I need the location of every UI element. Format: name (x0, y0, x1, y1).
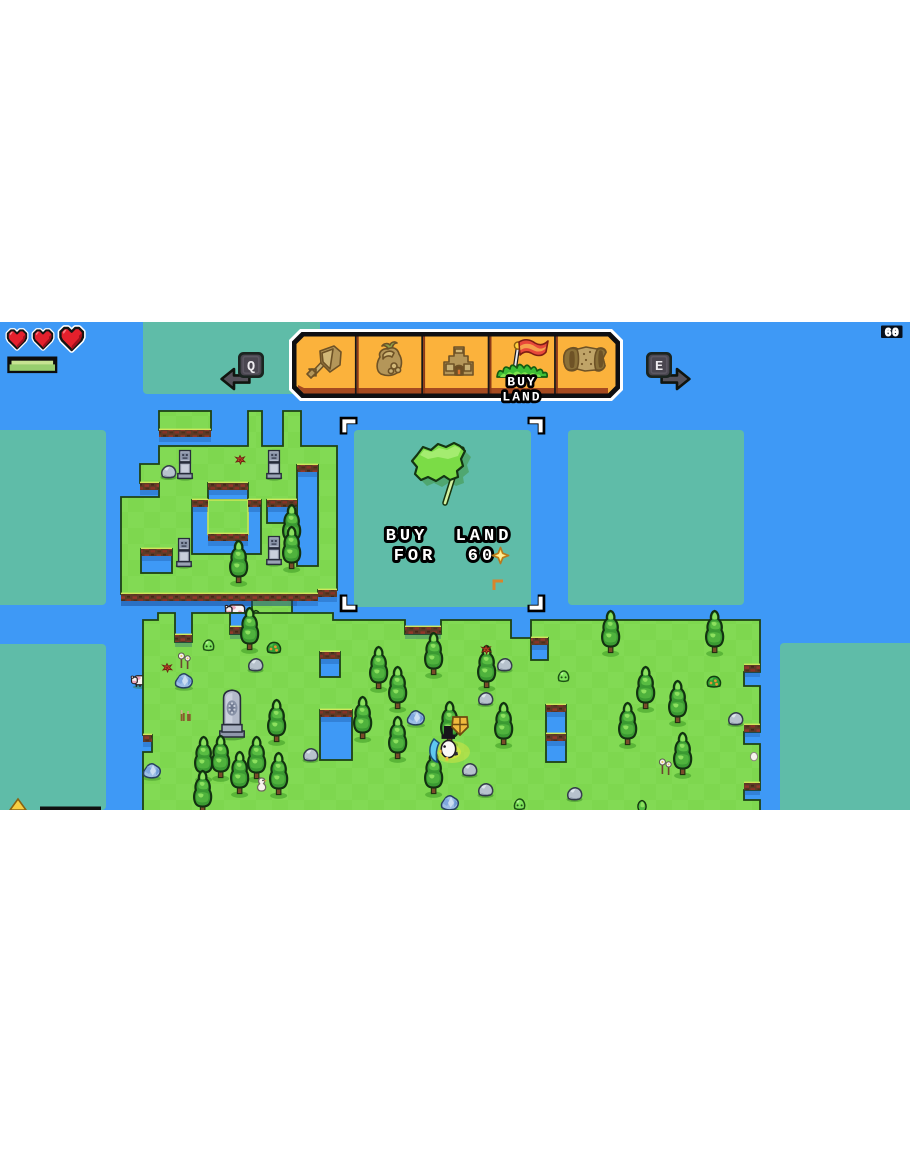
svg-text:60: 60 (885, 327, 900, 340)
svg-text:BUY: BUY (386, 527, 429, 546)
svg-text:FOR: FOR (394, 547, 437, 566)
svg-text:60: 60 (468, 547, 496, 566)
svg-text:BUY: BUY (507, 375, 536, 390)
svg-text:LAND: LAND (456, 527, 513, 546)
svg-text:Q: Q (247, 360, 255, 375)
svg-text:LAND: LAND (502, 390, 541, 405)
svg-text:E: E (655, 360, 663, 375)
